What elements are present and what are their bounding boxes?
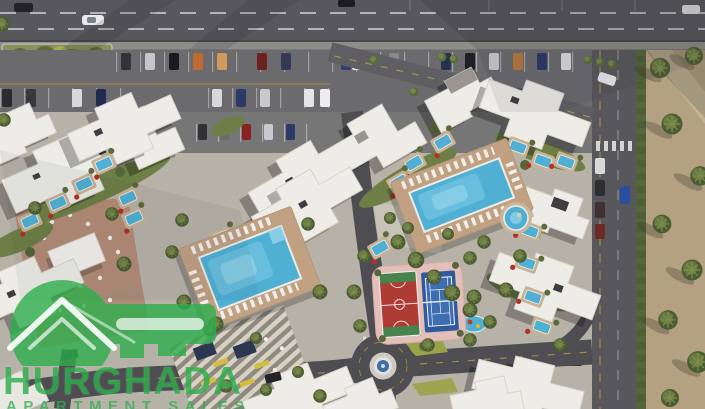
compound-scene	[0, 0, 705, 409]
basketball-court	[379, 271, 420, 337]
sports-courts	[371, 261, 466, 345]
kids-pool	[500, 202, 532, 234]
aerial-render: HURGHADA APARTMENT SALES	[0, 0, 705, 409]
